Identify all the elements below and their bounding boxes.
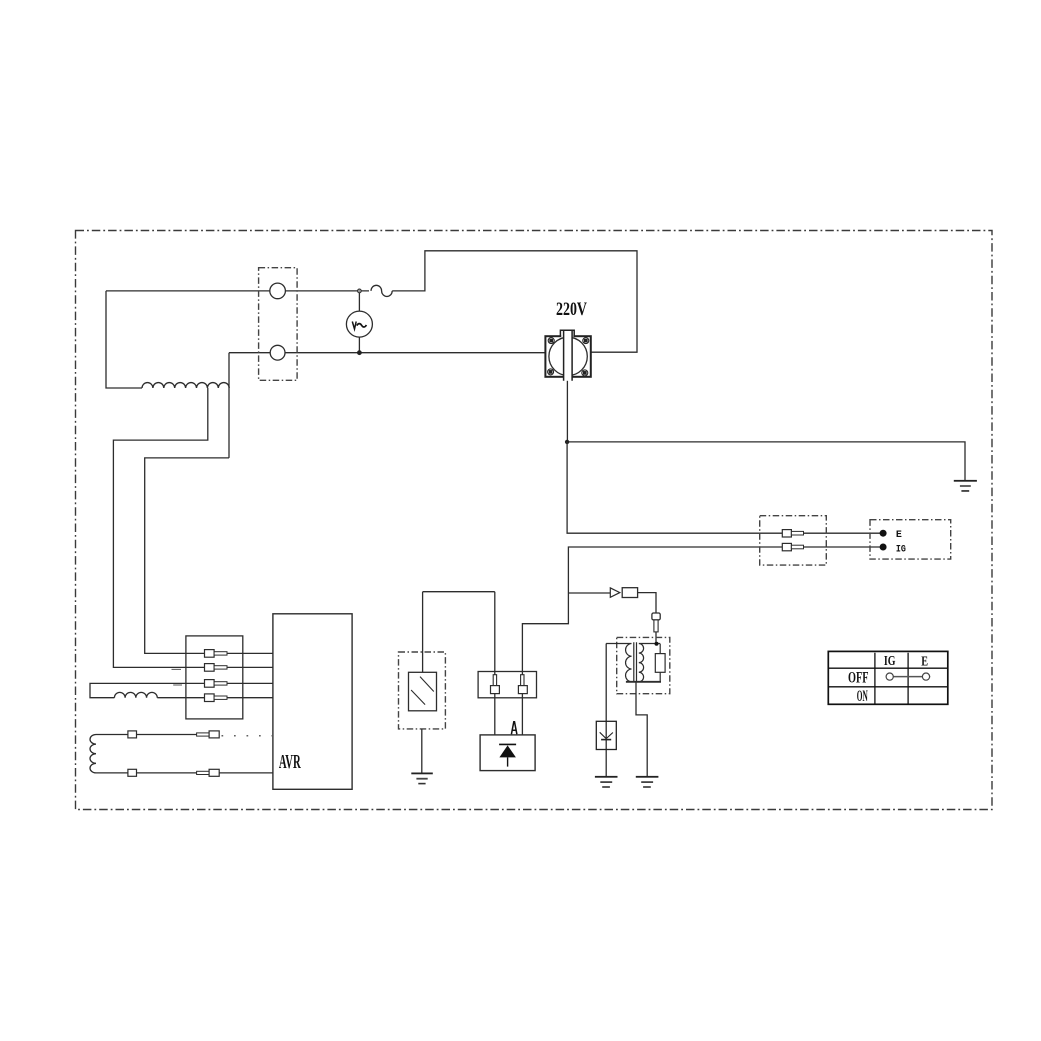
- svg-text:E: E: [896, 530, 902, 541]
- svg-text:ON: ON: [857, 688, 868, 705]
- svg-text:AVR: AVR: [279, 751, 301, 773]
- svg-text:IG: IG: [884, 654, 896, 669]
- svg-text:IG: IG: [896, 544, 906, 555]
- svg-text:E: E: [921, 655, 928, 670]
- svg-text:OFF: OFF: [848, 669, 869, 686]
- svg-text:220V: 220V: [556, 299, 587, 320]
